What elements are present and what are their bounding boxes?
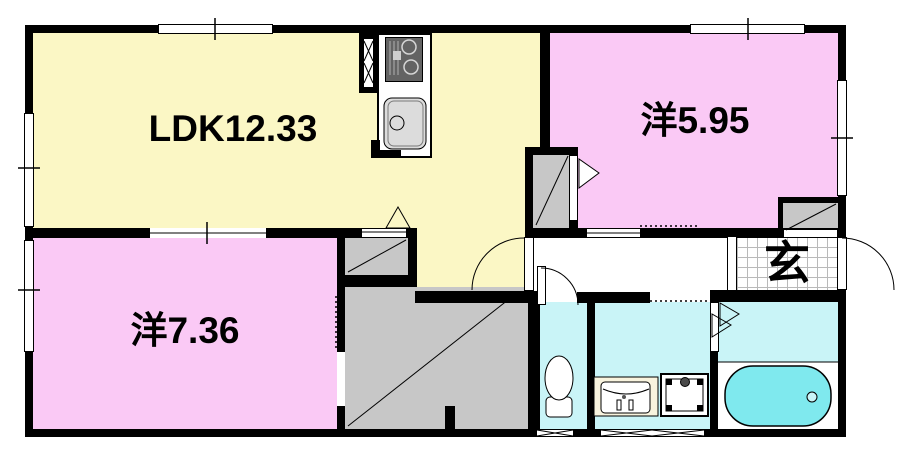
wall-outer-bottom: [25, 429, 846, 437]
toilet-door-arc: [541, 268, 578, 305]
kitchen-stove: [385, 37, 423, 82]
room-ldk-mid: [33, 150, 525, 230]
counter-foot-h: [371, 150, 401, 158]
front-door-leaf: [837, 237, 847, 290]
floorplan-canvas: LDK12.33 洋5.95 洋7.36 玄: [0, 0, 914, 464]
entrance-step: [727, 237, 737, 290]
window-washroom-bottom: [600, 429, 705, 437]
wall-closet-toilet: [528, 303, 540, 429]
opening-closet-large: [337, 352, 345, 406]
bathroom-door-leaf: [710, 302, 719, 352]
front-door-arc: [842, 238, 894, 290]
label-bedroom-a: 洋5.95: [615, 102, 775, 139]
toilet-door-leaf: [537, 266, 546, 305]
room-bathroom: [718, 302, 838, 362]
wall-closet-a-door-base: [569, 220, 578, 238]
wall-ldk-bedroom-a: [540, 33, 550, 152]
wall-corridor-bottom-1: [415, 291, 541, 303]
wall-closet-a-left: [525, 147, 533, 238]
label-entrance: 玄: [757, 240, 817, 286]
room-washroom: [595, 302, 712, 429]
wall-closet-stub: [445, 406, 455, 429]
label-bedroom-b: 洋7.36: [105, 312, 265, 349]
wall-shoe-top: [778, 197, 838, 203]
bathtub-deck: [718, 362, 838, 429]
closet-a-door-leaf: [569, 155, 578, 221]
shoe-cabinet-front: [784, 230, 837, 237]
wall-shoe-left: [778, 197, 783, 232]
wall-corridor-bottom-3: [710, 290, 846, 302]
closet-ldk: [345, 238, 408, 275]
window-bedroom-a-top: [690, 24, 805, 34]
wall-closet-ldk-bottom: [345, 275, 417, 287]
sliding-door-ldk-bedroom-b: [150, 228, 266, 238]
window-toilet-bottom: [536, 429, 574, 437]
window-bedroom-b-left: [24, 240, 34, 352]
wall-washroom-bathroom: [710, 352, 718, 429]
window-ldk-top: [158, 24, 273, 34]
window-bedroom-a-right: [837, 80, 847, 196]
opening-closet-ldk: [362, 229, 406, 237]
opening-bedroom-a-entry: [587, 229, 640, 237]
window-ldk-left: [24, 113, 34, 227]
wall-toilet-washroom: [587, 302, 595, 429]
closet-bedroom-a: [533, 152, 570, 228]
closet-large: [345, 287, 528, 429]
room-ldk-lower: [415, 228, 528, 292]
room-toilet: [540, 302, 587, 429]
ldk-door-leaf: [524, 237, 534, 291]
pipe-space-slot: [364, 39, 373, 87]
label-ldk: LDK12.33: [103, 110, 363, 147]
